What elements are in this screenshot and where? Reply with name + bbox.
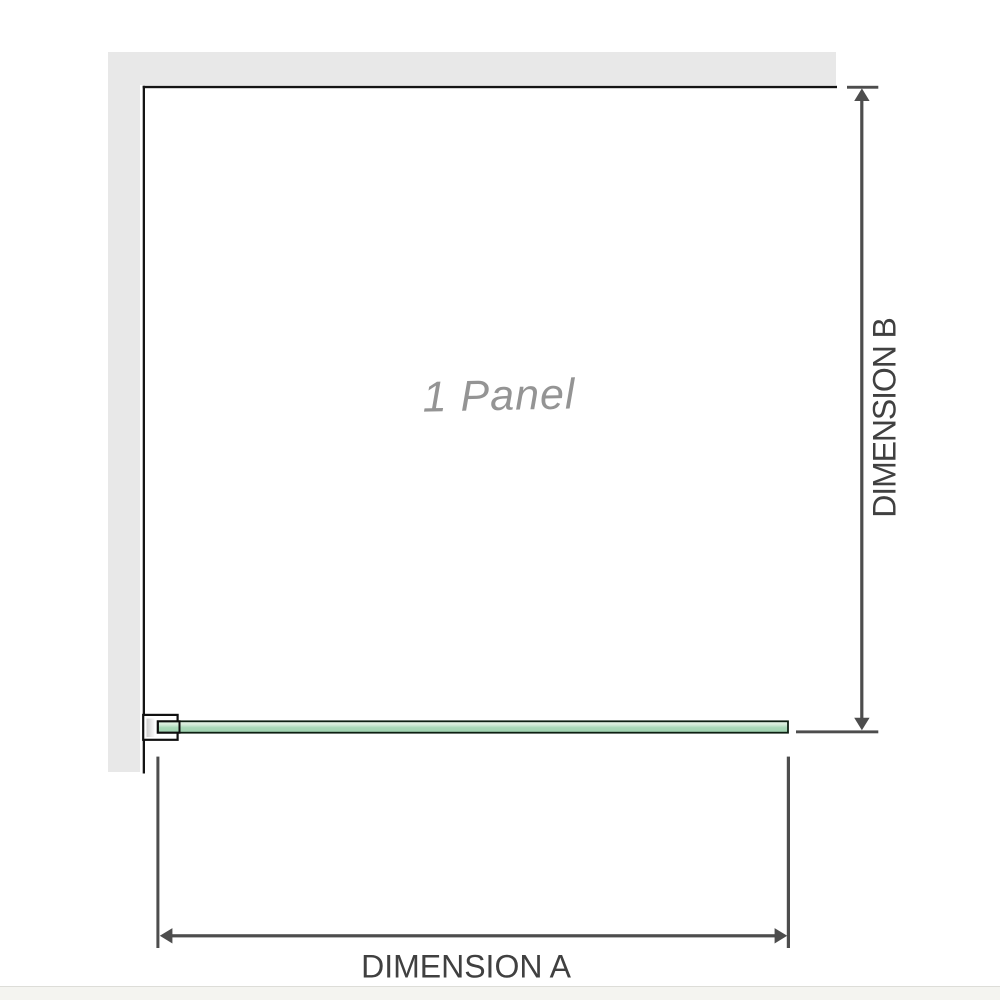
svg-text:DIMENSION B: DIMENSION B [867, 318, 903, 517]
svg-text:1 Panel: 1 Panel [422, 370, 576, 421]
svg-text:DIMENSION A: DIMENSION A [361, 949, 571, 985]
